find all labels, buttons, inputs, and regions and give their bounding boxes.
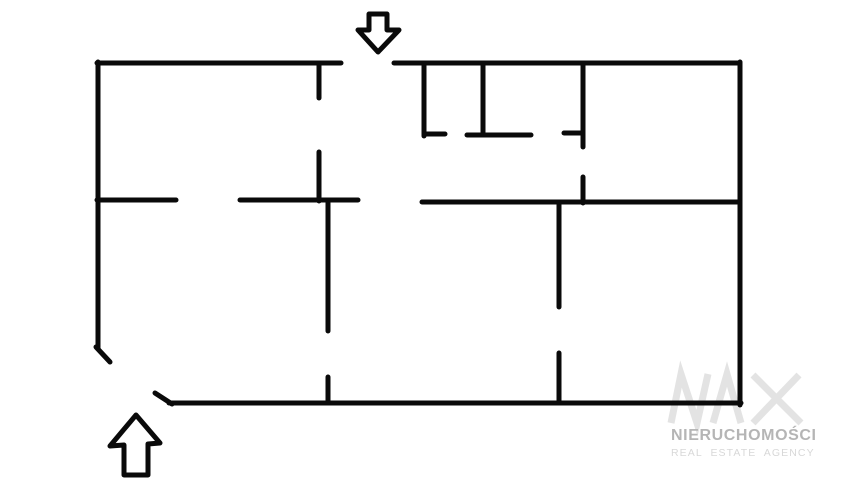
nax-logo-stroke <box>713 374 741 423</box>
bottom-entrance-jamb <box>155 393 172 404</box>
watermark-agency-tagline: REAL ESTATE AGENCY <box>671 448 836 459</box>
watermark: NIERUCHOMOŚCI REAL ESTATE AGENCY <box>671 428 836 459</box>
nax-logo <box>671 374 801 423</box>
main-entrance-arrow-down-icon <box>358 14 399 52</box>
floor-plan: NIERUCHOMOŚCI REAL ESTATE AGENCY <box>0 0 841 479</box>
left-entrance-jamb <box>96 347 110 362</box>
entrance-arrows-group <box>110 14 399 475</box>
nax-logo-stroke <box>671 374 708 423</box>
watermark-agency-name: NIERUCHOMOŚCI <box>671 428 836 444</box>
floor-plan-svg <box>0 0 841 479</box>
secondary-entrance-arrow-up-icon <box>110 415 160 475</box>
walls-group <box>96 62 741 405</box>
